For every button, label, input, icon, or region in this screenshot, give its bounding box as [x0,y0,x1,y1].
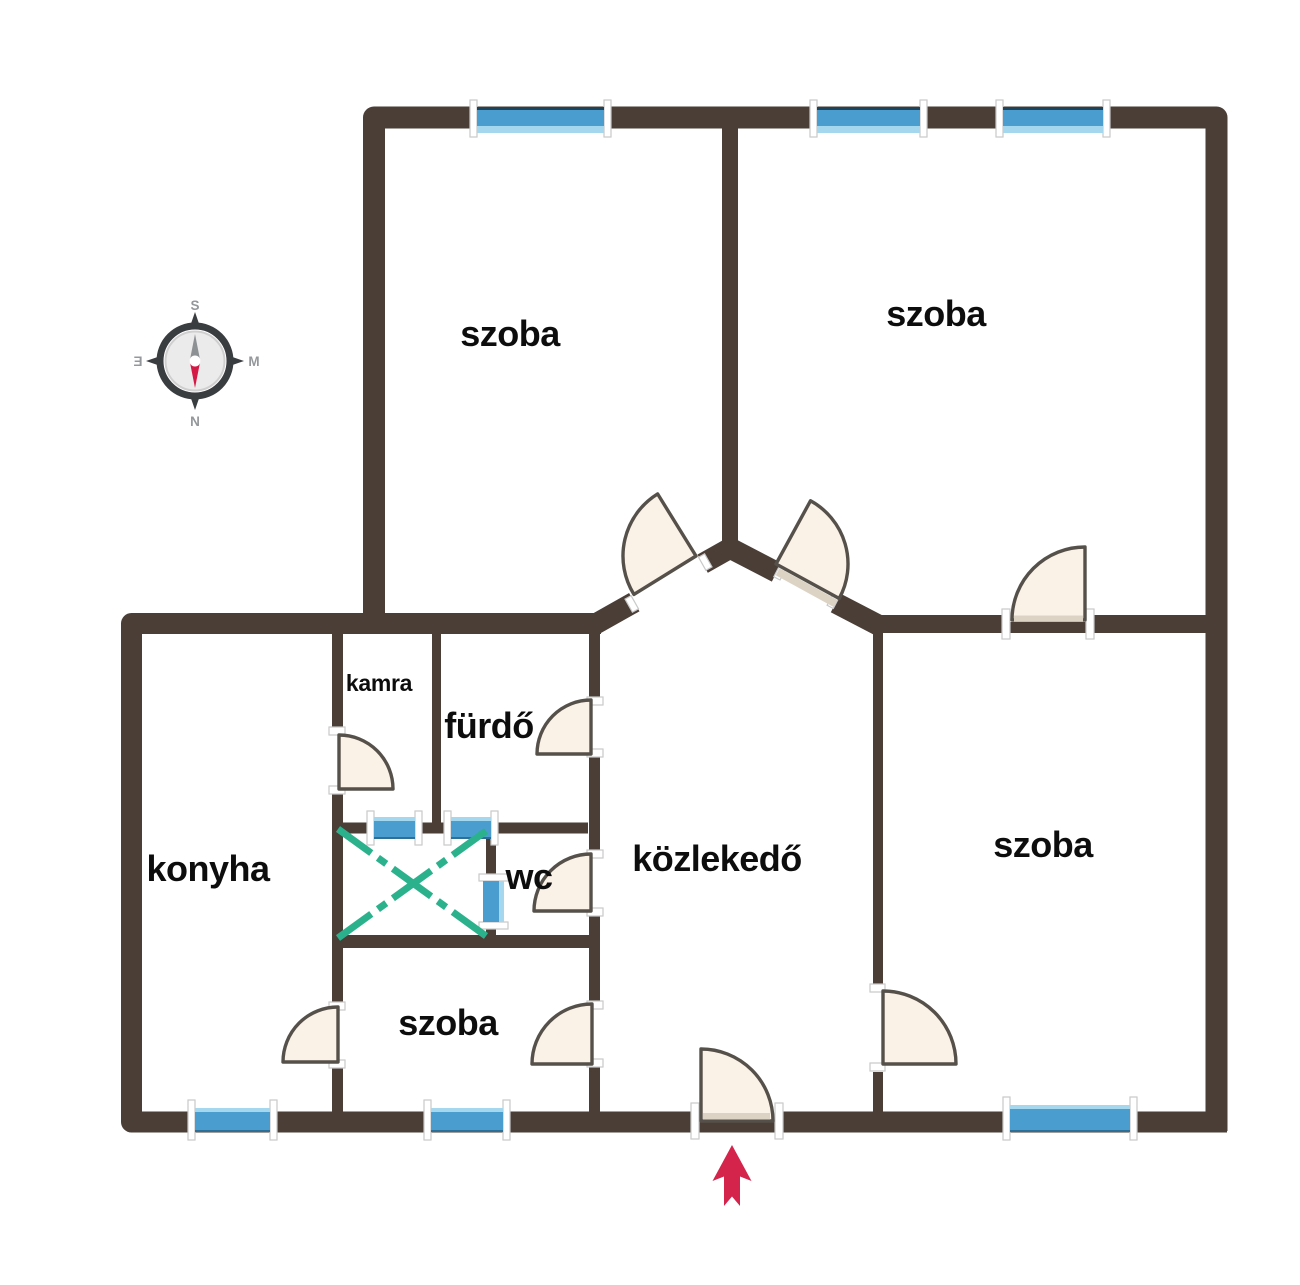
svg-text:közlekedő: közlekedő [632,838,802,879]
svg-text:wc: wc [504,856,552,897]
svg-text:szoba: szoba [398,1002,499,1043]
svg-text:szoba: szoba [993,824,1094,865]
svg-text:konyha: konyha [146,848,271,889]
svg-text:fürdő: fürdő [444,705,533,746]
svg-text:Ǝ: Ǝ [133,354,142,369]
svg-text:szoba: szoba [886,293,987,334]
svg-text:S: S [190,298,199,313]
svg-text:kamra: kamra [346,670,413,696]
svg-text:M: M [248,354,259,369]
svg-text:szoba: szoba [460,313,561,354]
svg-text:N: N [190,414,200,429]
